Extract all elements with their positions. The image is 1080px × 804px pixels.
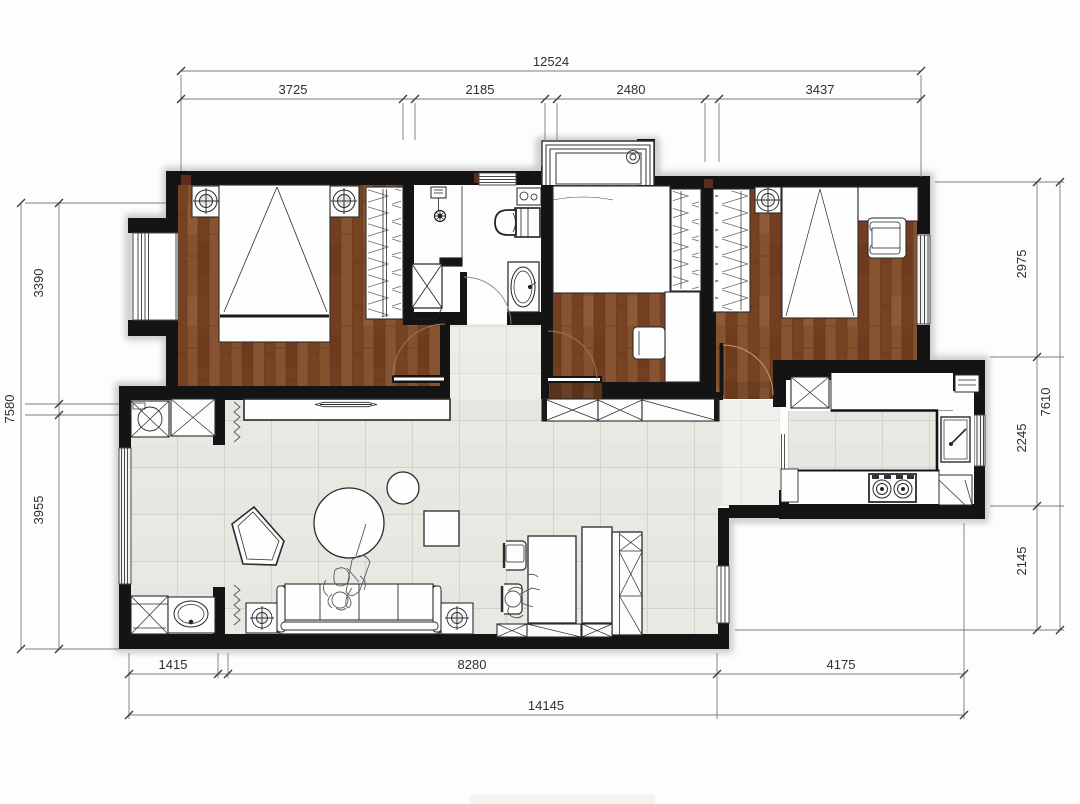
svg-text:12524: 12524 xyxy=(533,54,569,69)
svg-text:2185: 2185 xyxy=(466,82,495,97)
svg-text:2245: 2245 xyxy=(1014,424,1029,453)
svg-text:2975: 2975 xyxy=(1014,250,1029,279)
svg-text:1415: 1415 xyxy=(159,657,188,672)
svg-text:3390: 3390 xyxy=(31,269,46,298)
svg-text:4175: 4175 xyxy=(827,657,856,672)
svg-text:8280: 8280 xyxy=(458,657,487,672)
svg-text:3437: 3437 xyxy=(806,82,835,97)
svg-text:3955: 3955 xyxy=(31,496,46,525)
svg-text:7580: 7580 xyxy=(2,395,17,424)
svg-text:3725: 3725 xyxy=(279,82,308,97)
svg-text:7610: 7610 xyxy=(1038,388,1053,417)
svg-text:2145: 2145 xyxy=(1014,547,1029,576)
svg-text:14145: 14145 xyxy=(528,698,564,713)
svg-text:2480: 2480 xyxy=(617,82,646,97)
